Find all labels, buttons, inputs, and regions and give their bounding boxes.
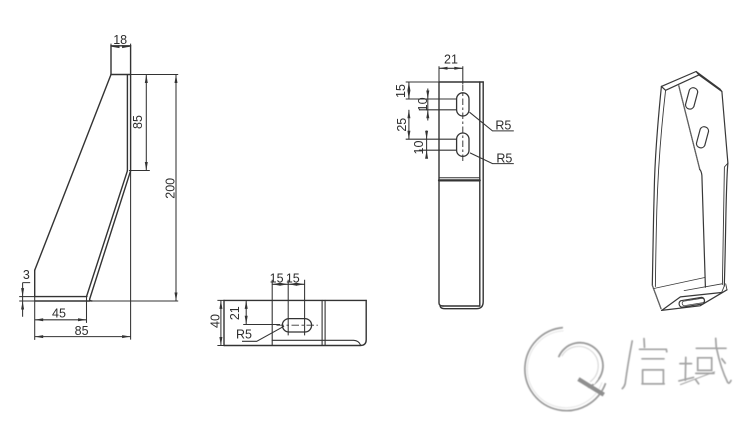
svg-text:18: 18	[113, 33, 127, 47]
svg-text:R5: R5	[236, 328, 252, 342]
svg-text:15: 15	[270, 271, 284, 285]
svg-text:40: 40	[209, 314, 223, 328]
svg-text:85: 85	[75, 324, 89, 338]
svg-text:200: 200	[164, 178, 178, 199]
svg-text:15: 15	[286, 271, 300, 285]
svg-text:R5: R5	[496, 151, 512, 165]
svg-text:21: 21	[228, 306, 242, 320]
svg-text:45: 45	[52, 307, 66, 321]
svg-text:10: 10	[412, 141, 426, 155]
svg-text:15: 15	[394, 84, 408, 98]
svg-text:R5: R5	[495, 119, 511, 133]
svg-text:25: 25	[395, 118, 409, 132]
svg-text:10: 10	[416, 97, 430, 111]
svg-text:3: 3	[23, 268, 30, 282]
svg-text:21: 21	[444, 53, 458, 67]
svg-text:85: 85	[131, 115, 145, 129]
